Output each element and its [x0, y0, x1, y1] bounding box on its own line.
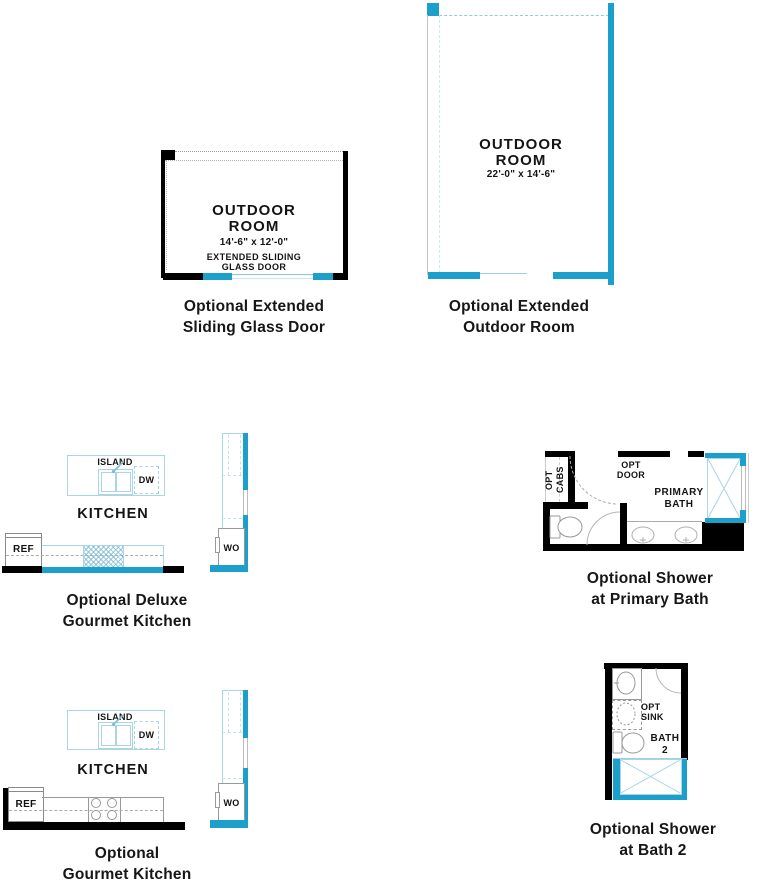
plan-deluxe-gourmet-kitchen: ISLAND DW KITCHEN REF WO [0, 430, 256, 576]
deluxe-kitchen-fixtures [0, 430, 256, 576]
toilet-icon [613, 732, 644, 753]
caption-sliding-glass-door: Optional Extended Sliding Glass Door [148, 296, 360, 338]
caption-deluxe-gourmet-kitchen: Optional Deluxe Gourmet Kitchen [27, 590, 227, 632]
plan-primary-bath: OPT CABS OPT DOOR PRIMARY BATH [540, 448, 752, 562]
sink-icon [614, 672, 635, 694]
shower-x-icon [708, 459, 740, 518]
caption-gourmet-kitchen: Optional Gourmet Kitchen [27, 843, 227, 882]
room-dimensions: 22'-0" x 14'-6" [423, 169, 619, 180]
faucet-icon [112, 462, 123, 473]
sink-icon-left [632, 527, 654, 543]
patio-edge-dotted [175, 151, 343, 152]
wall-bottom-right [333, 273, 348, 280]
plan-bath-2: OPT SINK BATH 2 [600, 655, 700, 805]
feature-label: EXTENDED SLIDING GLASS DOOR [158, 252, 350, 272]
shower-x-icon [621, 760, 680, 793]
wc-door-swing-icon [587, 512, 620, 545]
opt-sink-icon [617, 703, 635, 725]
faucet-icon [112, 715, 123, 726]
room-label: OUTDOOR ROOM [423, 137, 619, 169]
bath-2-fixtures [600, 655, 700, 805]
gourmet-kitchen-fixtures [0, 688, 256, 834]
roof-edge-dashed [439, 15, 609, 16]
burners-icon [92, 799, 117, 820]
option-wall-bottom-b [553, 272, 608, 279]
room-dimensions: 14'-6" x 12'-0" [158, 237, 350, 248]
plan-extended-sliding-glass-door: OUTDOOR ROOM 14'-6" x 12'-0" EXTENDED SL… [158, 148, 350, 280]
caption-bath-2: Optional Shower at Bath 2 [548, 819, 758, 861]
option-wall-bottom-b [313, 273, 333, 280]
wall-bottom-left [163, 273, 203, 280]
option-wall-bottom-a [428, 272, 480, 279]
plan-extended-outdoor-room: OUTDOOR ROOM 22'-0" x 14'-6" [423, 3, 619, 285]
room-label: OUTDOOR ROOM [158, 203, 350, 235]
opening-line [480, 273, 527, 274]
floor-plan-options-sheet: OUTDOOR ROOM 14'-6" x 12'-0" EXTENDED SL… [0, 0, 781, 882]
caption-primary-bath: Optional Shower at Primary Bath [545, 568, 755, 610]
door-swing-icon [570, 456, 618, 504]
caption-outdoor-room: Optional Extended Outdoor Room [413, 296, 625, 338]
option-wall-bottom-a [203, 273, 232, 280]
patio-edge-dotted-inner [165, 160, 343, 161]
sink-icon-right [675, 527, 697, 543]
primary-bath-fixtures [540, 448, 752, 562]
sliding-glass-door-symbol [232, 274, 313, 279]
plan-gourmet-kitchen: ISLAND DW KITCHEN REF WO [0, 688, 256, 834]
option-corner-block [427, 3, 439, 16]
toilet-icon [550, 516, 582, 538]
door-swing-icon [656, 668, 681, 693]
